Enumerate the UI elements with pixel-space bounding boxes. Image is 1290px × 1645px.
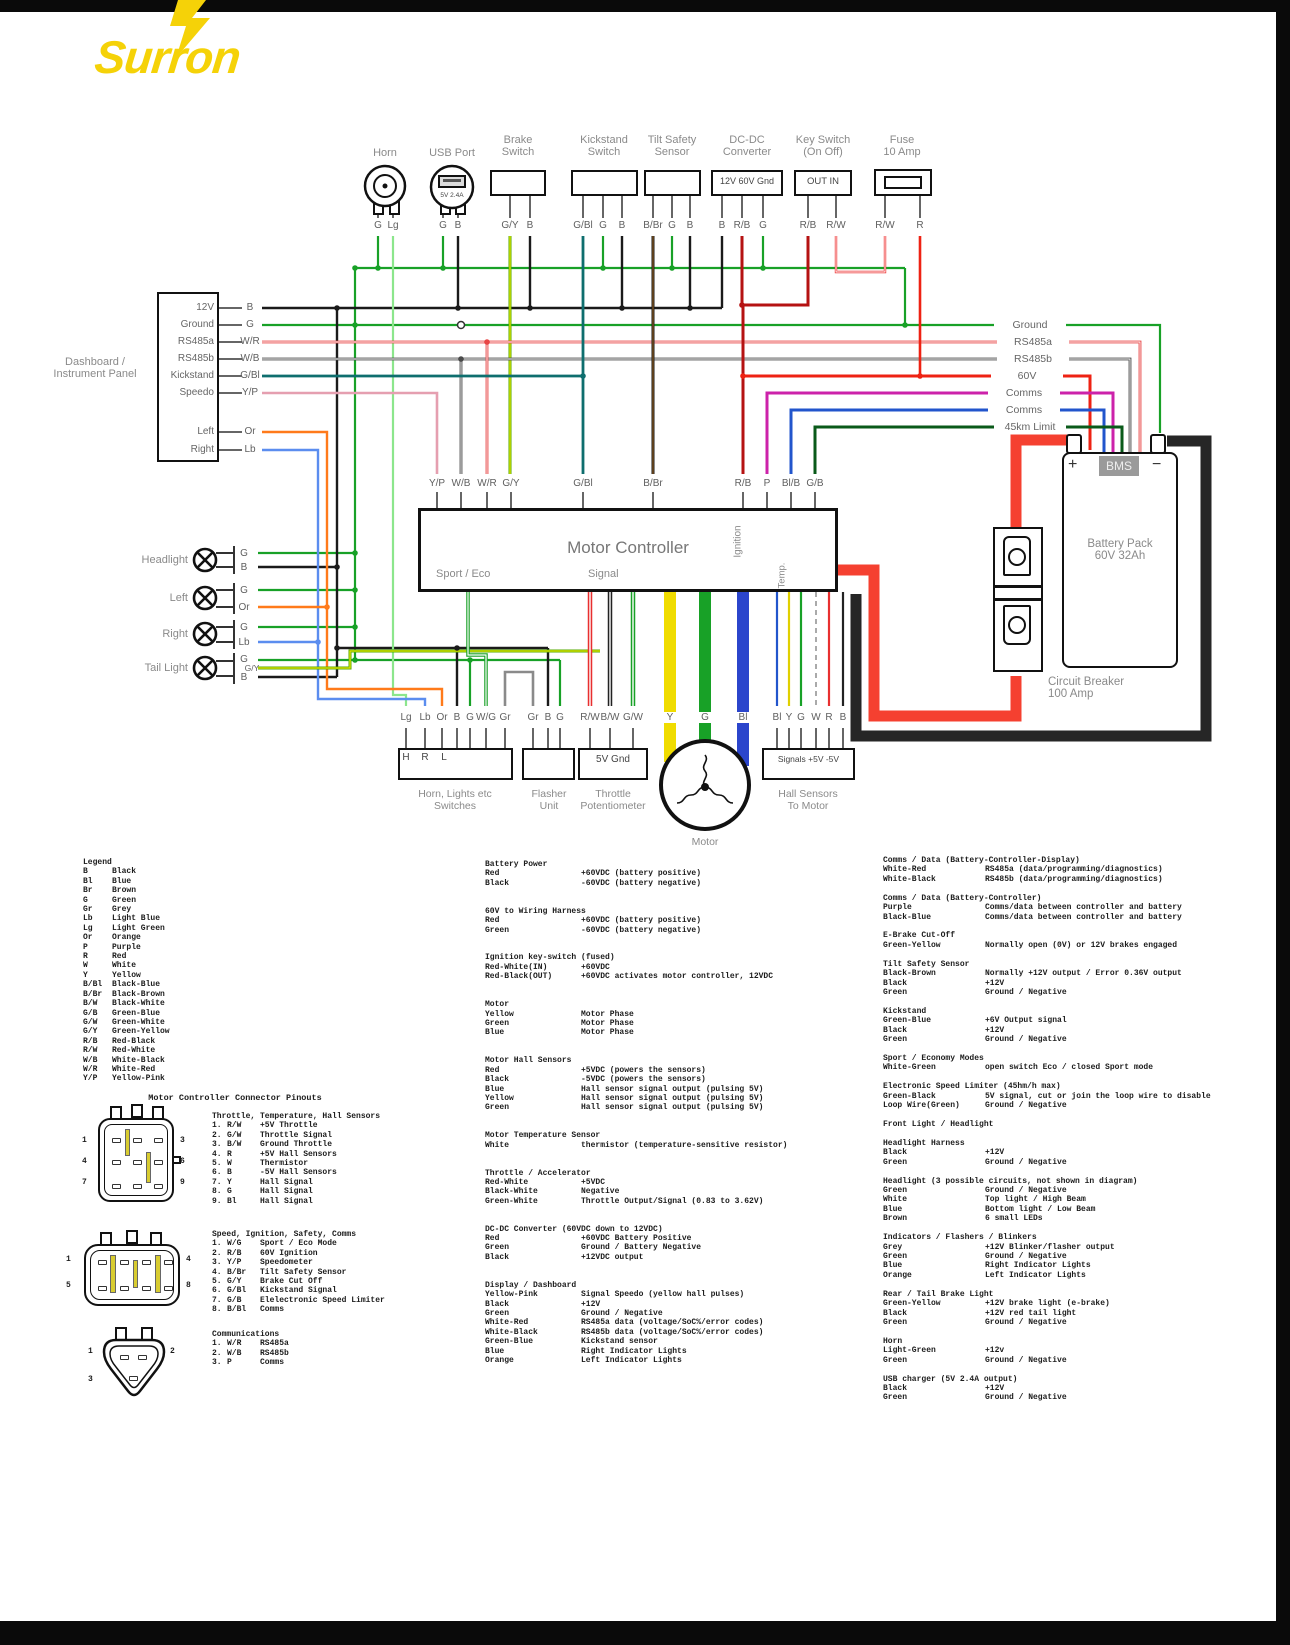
- legend-entry: BBlack: [83, 867, 303, 876]
- pinout-header: Communications: [212, 1330, 462, 1339]
- notes-row: Red-Black(OUT)+60VDC activ­ates motor co…: [485, 972, 865, 981]
- pin-label: R/W: [870, 220, 900, 231]
- notes-section-title: Throttle / Accelerator: [485, 1169, 865, 1178]
- notes-row: Light-Green+12v: [883, 1346, 1275, 1355]
- pinout-row: 2.W/BRS485b: [212, 1349, 462, 1358]
- battery-bms-label: BMS: [1099, 456, 1139, 476]
- connector-pin: [164, 1286, 173, 1291]
- throttle-inner-text: 5V Gnd: [578, 754, 648, 765]
- pin-label: B: [515, 220, 545, 231]
- notes-row: Red+5VDC (powers the sensors): [485, 1066, 865, 1075]
- notes-section: USB charger (5V 2.4A output)Black+12VGre…: [883, 1375, 1275, 1403]
- notes-row: YellowMotor Phase: [485, 1010, 865, 1019]
- controller-sport-eco-label: Sport / Eco: [436, 568, 490, 580]
- connector-8pin-inner: [90, 1250, 174, 1300]
- wiring-diagram-page: Surron: [0, 0, 1290, 1645]
- connector-pin: [98, 1286, 107, 1291]
- notes-row: Black+12V: [883, 1384, 1275, 1393]
- battery-title: Battery Pack 60V 32Ah: [1065, 538, 1175, 562]
- notes-section: Front Light / Headlight: [883, 1120, 1275, 1129]
- pin-label: R/B: [793, 220, 823, 231]
- notes-row: White-Greenopen switch Eco / closed Spor…: [883, 1063, 1275, 1072]
- notes-row: GreenGround / Negative: [883, 1356, 1275, 1365]
- hall-caption: Hall SensorsTo Motor: [738, 788, 878, 812]
- notes-section: MotorYellowMotor PhaseGreenMotor PhaseBl…: [485, 1000, 865, 1038]
- legend-entry: YYellow: [83, 971, 303, 980]
- notes-section-title: Ignition key-switch (fused): [485, 953, 865, 962]
- wire-kickstand: [262, 236, 583, 474]
- notes-row: Black-BrownNormally +12V output / Error …: [883, 969, 1275, 978]
- battery-plus: +: [1068, 456, 1077, 474]
- legend-entry: PPurple: [83, 943, 303, 952]
- notes-section-title: DC-DC Converter (60VDC down to 12VDC): [485, 1225, 865, 1234]
- legend-entry: B/WBlack-White: [83, 999, 303, 1008]
- pin-label: B: [443, 220, 473, 231]
- bottom-pin-label: B: [829, 712, 857, 723]
- legend-entry: W/BWhite-Black: [83, 1056, 303, 1065]
- notes-section-title: Tilt Safety Sensor: [883, 960, 1275, 969]
- legend-entry: Y/PYellow-Pink: [83, 1074, 303, 1083]
- legend-entry: G/WGreen-White: [83, 1018, 303, 1027]
- notes-section: Motor Hall SensorsRed+5VDC (powers the s…: [485, 1056, 865, 1112]
- notes-row: Black+12V: [485, 1300, 865, 1309]
- fuse-element: [884, 176, 922, 189]
- light-pin-label: Lb: [230, 637, 258, 648]
- connector-slot: [146, 1152, 151, 1183]
- light-label: Tail Light: [58, 662, 188, 674]
- notes-section: Comms / Data (Battery-Controller)PurpleC…: [883, 894, 1275, 922]
- notes-row: GreenGround / Negative: [883, 1035, 1275, 1044]
- connector-pin: [133, 1160, 142, 1165]
- dashboard-label: Dashboard / Instrument Panel: [20, 356, 170, 380]
- pinout-section: Speed, Ignition, Safety, Comms1.W/GSport…: [212, 1230, 462, 1315]
- connector-pin: [164, 1260, 173, 1265]
- connector-pin-number: 4: [186, 1255, 191, 1264]
- controller-pin-label: G/Bl: [566, 478, 600, 489]
- notes-row: Black+12V red tail light: [883, 1309, 1275, 1318]
- notes-section: Ignition key-switch (fused)Red-White(IN)…: [485, 953, 865, 981]
- notes-section: Electronic Speed Limiter (45hm/h max)Gre…: [883, 1082, 1275, 1110]
- battery-title-line1: Battery Pack: [1065, 538, 1175, 550]
- notes-row: GreenGround / Negative: [883, 1186, 1275, 1195]
- controller-pin-label: G/B: [798, 478, 832, 489]
- notes-row: GreenHall sensor signal output (pulsing …: [485, 1103, 865, 1112]
- notes-row: Brown6 small LEDs: [883, 1214, 1275, 1223]
- connector-pin-number: 3: [180, 1136, 185, 1145]
- component-label: Fuse10 Amp: [842, 134, 962, 158]
- notes-row: Black-5VDC (powers the sensors): [485, 1075, 865, 1084]
- pinout-row: 1.W/RRS485a: [212, 1339, 462, 1348]
- notes-section-title: Motor Temperature Sensor: [485, 1131, 865, 1140]
- pinout-row: 6.B-5V Hall Sensors: [212, 1168, 462, 1177]
- notes-row: Green-60VDC (battery negative): [485, 926, 865, 935]
- pinout-section: Communications1.W/RRS485a2.W/BRS485b3.PC…: [212, 1330, 462, 1368]
- connector-pin: [98, 1260, 107, 1265]
- pinout-row: 3.Y/PSpeedometer: [212, 1258, 462, 1267]
- wire-speedo: [262, 393, 437, 474]
- pinouts-title: Motor Controller Connector Pinouts: [95, 1094, 375, 1103]
- notes-row: GreenGround / Negative: [883, 1318, 1275, 1327]
- notes-row: White-RedRS485a (data/programming/diagno…: [883, 865, 1275, 874]
- notes-row: OrangeLeft Indicator Lights: [883, 1271, 1275, 1280]
- legend-entry: GGreen: [83, 896, 303, 905]
- connector-pin: [138, 1355, 147, 1360]
- notes-row: Red-White(IN)+60VDC: [485, 963, 865, 972]
- component-box: [644, 170, 701, 196]
- connector-pin-number: 7: [82, 1178, 87, 1187]
- dashboard-row-name: Ground: [160, 319, 214, 330]
- connector-pin: [112, 1184, 121, 1189]
- notes-row: GreenGround / Battery Negative: [485, 1243, 865, 1252]
- legend-entry: B/BlBlack-Blue: [83, 980, 303, 989]
- breaker-divider1: [993, 585, 1043, 588]
- connector-pin: [120, 1260, 129, 1265]
- legend-entry: RRed: [83, 952, 303, 961]
- pinout-row: 3.PComms: [212, 1358, 462, 1367]
- light-pin-label: Or: [230, 602, 258, 613]
- connector-pin-number: 6: [180, 1157, 185, 1166]
- bus-label: RS485b: [997, 353, 1069, 365]
- battery-terminal-negative: [1150, 434, 1166, 454]
- notes-column-middle: Battery PowerRed+60VDC (battery positive…: [485, 860, 865, 1384]
- switches-inner-letter: L: [439, 752, 449, 763]
- dashboard-row-name: RS485a: [160, 336, 214, 347]
- notes-section-title: Battery Power: [485, 860, 865, 869]
- component-inner-text: OUT IN: [778, 176, 868, 187]
- notes-row: Black+12V: [883, 1148, 1275, 1157]
- notes-row: Black+12V: [883, 979, 1275, 988]
- pinout-row: 6.G/BlKickstand Signal: [212, 1286, 462, 1295]
- connector-pin-number: 3: [88, 1375, 93, 1384]
- notes-column-right: Comms / Data (Battery-Controller-Display…: [883, 856, 1275, 1412]
- dashboard-row-name: Right: [160, 444, 214, 455]
- light-pin-label: B: [230, 672, 258, 683]
- dashboard-pin-label: G: [236, 319, 264, 330]
- bottom-pin-label: G/W: [619, 712, 647, 723]
- legend-block: LegendBBlackBlBlueBrBrownGGreenGrGreyLbL…: [83, 858, 303, 1084]
- notes-row: BlueMotor Phase: [485, 1028, 865, 1037]
- legend-entry: GrGrey: [83, 905, 303, 914]
- dashboard-label-line2: Instrument Panel: [20, 368, 170, 380]
- notes-section-title: E-Brake Cut-Off: [883, 931, 1275, 940]
- wire-battery-positive-cable: [838, 570, 1016, 716]
- dashboard-pin-label: W/R: [236, 336, 264, 347]
- pinout-row: 1.R/W+5V Throttle: [212, 1121, 462, 1130]
- breaker-bolt-top: [1008, 548, 1026, 566]
- notes-row: BlueRight Indicator Lights: [883, 1261, 1275, 1270]
- bus-label: Comms: [988, 387, 1060, 399]
- switches-box: [398, 748, 513, 780]
- connector-pin: [120, 1286, 129, 1291]
- pinout-row: 4.R+5V Hall Sensors: [212, 1150, 462, 1159]
- pinout-row: 3.B/WGround Throttle: [212, 1140, 462, 1149]
- light-label: Right: [58, 628, 188, 640]
- connector-9pin-tab: [152, 1106, 164, 1120]
- connector-pin-number: 4: [82, 1157, 87, 1166]
- connector-pin: [142, 1260, 151, 1265]
- notes-section: Throttle / AcceleratorRed-White+5VDCBlac…: [485, 1169, 865, 1207]
- light-label: Headlight: [58, 554, 188, 566]
- notes-section: HornLight-Green+12vGreenGround / Negativ…: [883, 1337, 1275, 1365]
- connector-pin: [154, 1184, 163, 1189]
- notes-section-title: Sport / Economy Modes: [883, 1054, 1275, 1063]
- notes-row: Black-WhiteNegative: [485, 1187, 865, 1196]
- notes-section-title: Headlight Harness: [883, 1139, 1275, 1148]
- breaker-divider2: [993, 598, 1043, 601]
- horn-icon: [365, 166, 405, 214]
- dashboard-row-name: Speedo: [160, 387, 214, 398]
- dashboard-pin-label: G/Bl: [236, 370, 264, 381]
- controller-temp-label: Temp.: [777, 546, 788, 606]
- dashboard-row-name: Left: [160, 426, 214, 437]
- notes-section: Indicators / Flashers / BlinkersGrey+12V…: [883, 1233, 1275, 1280]
- notes-row: Red+60VDC (battery positive): [485, 869, 865, 878]
- connector-slot: [125, 1129, 130, 1156]
- dashboard-pin-label: W/B: [236, 353, 264, 364]
- notes-row: GreenGround / Negative: [883, 1252, 1275, 1261]
- connector-pin: [120, 1355, 129, 1360]
- connector-pin-number: 8: [186, 1281, 191, 1290]
- battery-title-line2: 60V 32Ah: [1065, 550, 1175, 562]
- notes-section: Comms / Data (Battery-Controller-Display…: [883, 856, 1275, 884]
- pin-label: Lg: [378, 220, 408, 231]
- legend-entry: LgLight Green: [83, 924, 303, 933]
- wire-light-green-horn: [393, 236, 406, 706]
- notes-row: Loop Wire(Green)Ground / Negative: [883, 1101, 1275, 1110]
- connector-9pin-tab: [131, 1104, 143, 1118]
- lamp-icons: [194, 549, 216, 679]
- notes-row: WhiteTop light / High Beam: [883, 1195, 1275, 1204]
- notes-row: Green-YellowNormally open (0V) or 12V br…: [883, 941, 1275, 950]
- light-label: Left: [58, 592, 188, 604]
- dashboard-pin-label: B: [236, 302, 264, 313]
- notes-row: GreenGround / Negative: [883, 1158, 1275, 1167]
- legend-entry: BlBlue: [83, 877, 303, 886]
- connector-pin: [112, 1160, 121, 1165]
- notes-row: OrangeLeft Indicator Lights: [485, 1356, 865, 1365]
- pinout-section: Throttle, Temperature, Hall Sensors1.R/W…: [212, 1112, 462, 1206]
- connector-8pin-tab: [100, 1232, 112, 1246]
- notes-section: Headlight HarnessBlack+12VGreenGround / …: [883, 1139, 1275, 1167]
- notes-section-title: Front Light / Headlight: [883, 1120, 1275, 1129]
- connector-pin: [154, 1138, 163, 1143]
- connector-pin-number: 1: [66, 1255, 71, 1264]
- pinout-row: 5.G/YBrake Cut Off: [212, 1277, 462, 1286]
- connector-9pin-tab: [110, 1106, 122, 1120]
- legend-entry: B/BrBlack-Brown: [83, 990, 303, 999]
- pin-label: R: [905, 220, 935, 231]
- connector-pin-number: 1: [88, 1347, 93, 1356]
- component-inner-text: 5V 2.4A: [407, 192, 497, 199]
- notes-section-title: Indicators / Flashers / Blinkers: [883, 1233, 1275, 1242]
- notes-row: BlueRight Indicator Lights: [485, 1347, 865, 1356]
- pinout-row: 8.GHall Signal: [212, 1187, 462, 1196]
- notes-section: Motor Temperature SensorWhitethermistor …: [485, 1131, 865, 1150]
- pinout-row: 2.R/B60V Ignition: [212, 1249, 462, 1258]
- pinout-row: 9.BlHall Signal: [212, 1197, 462, 1206]
- controller-ignition-label: Ignition: [733, 512, 744, 572]
- pin-label: B: [675, 220, 705, 231]
- legend-entry: R/BRed-Black: [83, 1037, 303, 1046]
- notes-row: White-BlackRS485b data (voltage/SoC%/err…: [485, 1328, 865, 1337]
- component-box: [571, 170, 638, 196]
- notes-section-title: Motor Hall Sensors: [485, 1056, 865, 1065]
- dashboard-row-name: Kickstand: [160, 370, 214, 381]
- notes-row: White-BlackRS485b (data/programming/diag…: [883, 875, 1275, 884]
- circuit-breaker-label-line2: 100 Amp: [1048, 688, 1124, 700]
- pinout-row: 4.B/BrTilt Safety Sensor: [212, 1268, 462, 1277]
- notes-section-title: Rear / Tail Brake Light: [883, 1290, 1275, 1299]
- connector-8pin-tab: [150, 1232, 162, 1246]
- bottom-pin-label: Bl: [729, 712, 757, 723]
- pinout-row: 2.G/WThrottle Signal: [212, 1131, 462, 1140]
- flasher-box: [522, 748, 575, 780]
- dashboard-pin-label: Y/P: [236, 387, 264, 398]
- light-pin-label: G: [230, 585, 258, 596]
- controller-signal-label: Signal: [588, 568, 619, 580]
- notes-row: Black+12VDC output: [485, 1253, 865, 1262]
- notes-row: Grey+12V Blinker/flasher output: [883, 1243, 1275, 1252]
- notes-section: E-Brake Cut-OffGreen-YellowNormally open…: [883, 931, 1275, 950]
- pinout-row: 8.B/BlComms: [212, 1305, 462, 1314]
- connector-pin: [154, 1160, 163, 1165]
- usb-port-icon: [431, 166, 473, 214]
- connector-3pin: [104, 1328, 164, 1395]
- hall-inner-text: Signals +5V -5V: [762, 754, 855, 764]
- legend-entry: LbLight Blue: [83, 914, 303, 923]
- battery-terminal-positive: [1066, 434, 1082, 454]
- switches-inner-letter: R: [420, 752, 430, 763]
- legend-entry: OrOrange: [83, 933, 303, 942]
- bus-label: 45km Limit: [994, 421, 1066, 433]
- motor-caption: Motor: [655, 836, 755, 848]
- motor-icon: [661, 741, 749, 829]
- pinout-header: Throttle, Temperature, Hall Sensors: [212, 1112, 462, 1121]
- throttle-caption: ThrottlePotentiometer: [543, 788, 683, 812]
- notes-row: Green-Yellow+12V brake light (e-brake): [883, 1299, 1275, 1308]
- notes-row: Green-BlueKickstand sensor: [485, 1337, 865, 1346]
- legend-entry: W/RWhite-Red: [83, 1065, 303, 1074]
- notes-row: GreenMotor Phase: [485, 1019, 865, 1028]
- bottom-pin-label: Y: [656, 712, 684, 723]
- component-box: [490, 170, 546, 196]
- notes-row: Green-Black5V signal, cut or join the lo…: [883, 1092, 1275, 1101]
- pin-label: G: [748, 220, 778, 231]
- switches-inner-letter: H: [401, 752, 411, 763]
- connector-pin: [133, 1138, 142, 1143]
- connector-pin-number: 1: [82, 1136, 87, 1145]
- notes-row: BlueHall sensor signal output (pulsing 5…: [485, 1085, 865, 1094]
- bus-label: RS485a: [997, 336, 1069, 348]
- notes-row: Black-60VDC (battery negative): [485, 879, 865, 888]
- light-pin-label: G: [230, 622, 258, 633]
- connector-pin: [133, 1184, 142, 1189]
- battery-minus: −: [1152, 456, 1161, 474]
- notes-section: Tilt Safety SensorBlack-BrownNormally +1…: [883, 960, 1275, 998]
- notes-row: Whitethermistor (temperature-sensitive r…: [485, 1141, 865, 1150]
- connector-pin-number: 2: [170, 1347, 175, 1356]
- pinout-header: Speed, Ignition, Safety, Comms: [212, 1230, 462, 1239]
- notes-section: Rear / Tail Brake LightGreen-Yellow+12V …: [883, 1290, 1275, 1328]
- circuit-breaker-label-line1: Circuit Breaker: [1048, 676, 1124, 688]
- legend-entry: WWhite: [83, 961, 303, 970]
- connector-pin-number: 9: [180, 1178, 185, 1187]
- notes-row: PurpleComms/data between controller and …: [883, 903, 1275, 912]
- notes-row: Green-WhiteThrottle Output/Signal (0.83 …: [485, 1197, 865, 1206]
- notes-row: Red+60VDC Battery Positive: [485, 1234, 865, 1243]
- notes-row: Green-Blue+6V Output signal: [883, 1016, 1275, 1025]
- notes-section-title: USB charger (5V 2.4A output): [883, 1375, 1275, 1384]
- dashboard-label-line1: Dashboard /: [20, 356, 170, 368]
- connector-pin: [112, 1138, 121, 1143]
- notes-row: GreenGround / Negative: [883, 988, 1275, 997]
- notes-section-title: Horn: [883, 1337, 1275, 1346]
- connector-pin: [129, 1376, 138, 1381]
- legend-entry: R/WRed-White: [83, 1046, 303, 1055]
- connector-slot: [133, 1260, 138, 1288]
- notes-row: Red-White+5VDC: [485, 1178, 865, 1187]
- notes-section: KickstandGreen-Blue+6V Output signalBlac…: [883, 1007, 1275, 1045]
- dashboard-pin-label: Lb: [236, 444, 264, 455]
- controller-pin-label: B/Br: [636, 478, 670, 489]
- light-pin-label: B: [230, 562, 258, 573]
- notes-section: DC-DC Converter (60VDC down to 12VDC)Red…: [485, 1225, 865, 1263]
- pinout-row: 1.W/GSport / Eco Mode: [212, 1239, 462, 1248]
- notes-section-title: Motor: [485, 1000, 865, 1009]
- wire-ignition: [742, 236, 808, 474]
- dashboard-row-name: RS485b: [160, 353, 214, 364]
- notes-row: GreenGround / Negative: [485, 1309, 865, 1318]
- pinout-row: 7.G/BElelectronic Speed Limiter: [212, 1296, 462, 1305]
- pin-label: R/W: [821, 220, 851, 231]
- notes-section-title: Electronic Speed Limiter (45hm/h max): [883, 1082, 1275, 1091]
- wire-grey-flasher: [505, 672, 533, 706]
- pinout-row: 5.WThermistor: [212, 1159, 462, 1168]
- notes-section-title: Headlight (3 possible circuits, not show…: [883, 1177, 1275, 1186]
- bottom-pin-label: G: [691, 712, 719, 723]
- connector-pin-number: 5: [66, 1281, 71, 1290]
- dashboard-row-name: 12V: [160, 302, 214, 313]
- light-pin-label: G: [230, 548, 258, 559]
- bottom-pin-label: G: [546, 712, 574, 723]
- notes-row: BlueBottom light / Low Beam: [883, 1205, 1275, 1214]
- notes-row: YellowHall sensor signal output (pulsing…: [485, 1094, 865, 1103]
- connector-slot: [155, 1255, 161, 1293]
- notes-section: Battery PowerRed+60VDC (battery positive…: [485, 860, 865, 888]
- bottom-pin-label: Gr: [491, 712, 519, 723]
- notes-section-title: Comms / Data (Battery-Controller-Display…: [883, 856, 1275, 865]
- legend-title: Legend: [83, 858, 303, 867]
- notes-section: Sport / Economy ModesWhite-Greenopen swi…: [883, 1054, 1275, 1073]
- notes-row: Black+12V: [883, 1026, 1275, 1035]
- bus-label: 60V: [991, 370, 1063, 382]
- notes-row: Black-BlueComms/data between controller …: [883, 913, 1275, 922]
- notes-section-title: Comms / Data (Battery-Controller): [883, 894, 1275, 903]
- breaker-bolt-bottom: [1008, 616, 1026, 634]
- pin-label: B: [607, 220, 637, 231]
- notes-section: 60V to Wiring HarnessRed+60VDC (battery …: [485, 907, 865, 935]
- bus-label: Ground: [994, 319, 1066, 331]
- notes-section: Headlight (3 possible circuits, not show…: [883, 1177, 1275, 1224]
- connector-8pin-tab: [126, 1230, 138, 1244]
- notes-section-title: Kickstand: [883, 1007, 1275, 1016]
- circuit-breaker-label: Circuit Breaker 100 Amp: [1048, 676, 1124, 700]
- connector-slot: [110, 1255, 116, 1293]
- legend-entry: BrBrown: [83, 886, 303, 895]
- legend-entry: G/BGreen-Blue: [83, 1009, 303, 1018]
- notes-section: Display / DashboardYellow-PinkSignal Spe…: [485, 1281, 865, 1366]
- notes-row: Yellow-PinkSignal Speedo (yellow hall pu…: [485, 1290, 865, 1299]
